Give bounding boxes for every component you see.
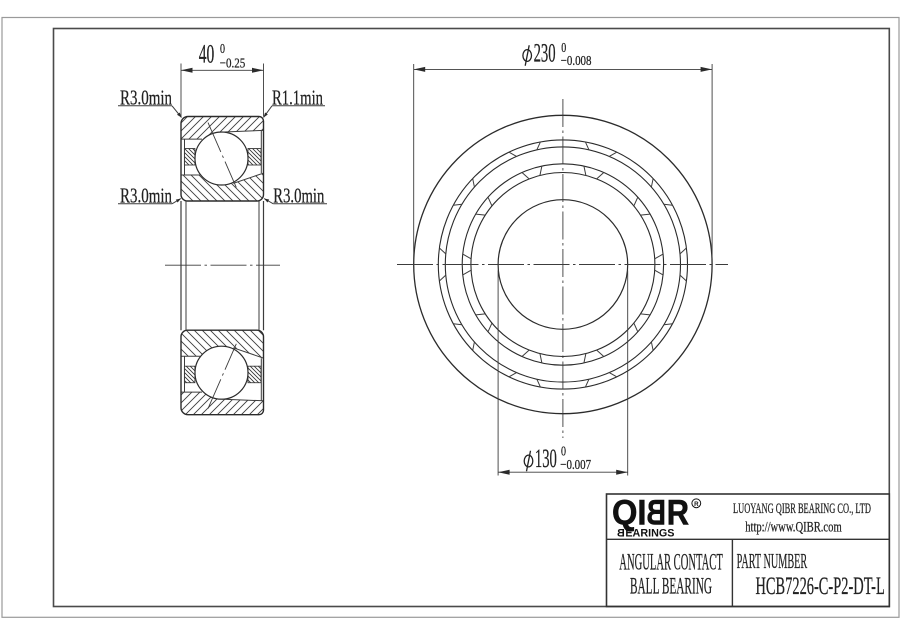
svg-text:−0.25: −0.25	[220, 57, 246, 72]
svg-text:−0.007: −0.007	[560, 458, 591, 473]
svg-text:−0.008: −0.008	[561, 54, 592, 69]
svg-text:PART NUMBER: PART NUMBER	[737, 549, 808, 573]
svg-text:EARINGS: EARINGS	[625, 527, 674, 539]
svg-text:R: R	[694, 501, 699, 508]
svg-text:0: 0	[220, 42, 225, 57]
svg-text:B: B	[617, 527, 625, 539]
svg-text:ANGULAR CONTACT: ANGULAR CONTACT	[619, 550, 723, 575]
svg-text:BALL BEARING: BALL BEARING	[630, 574, 712, 599]
svg-text:http://www.QIBR.com: http://www.QIBR.com	[745, 520, 842, 536]
svg-text:130: 130	[535, 444, 557, 473]
svg-text:230: 230	[534, 39, 556, 68]
svg-text:LUOYANG QIBR BEARING CO., LTD: LUOYANG QIBR BEARING CO., LTD	[733, 501, 871, 517]
svg-text:40: 40	[199, 39, 215, 68]
svg-text:HCB7226-C-P2-DT-L: HCB7226-C-P2-DT-L	[756, 571, 885, 600]
